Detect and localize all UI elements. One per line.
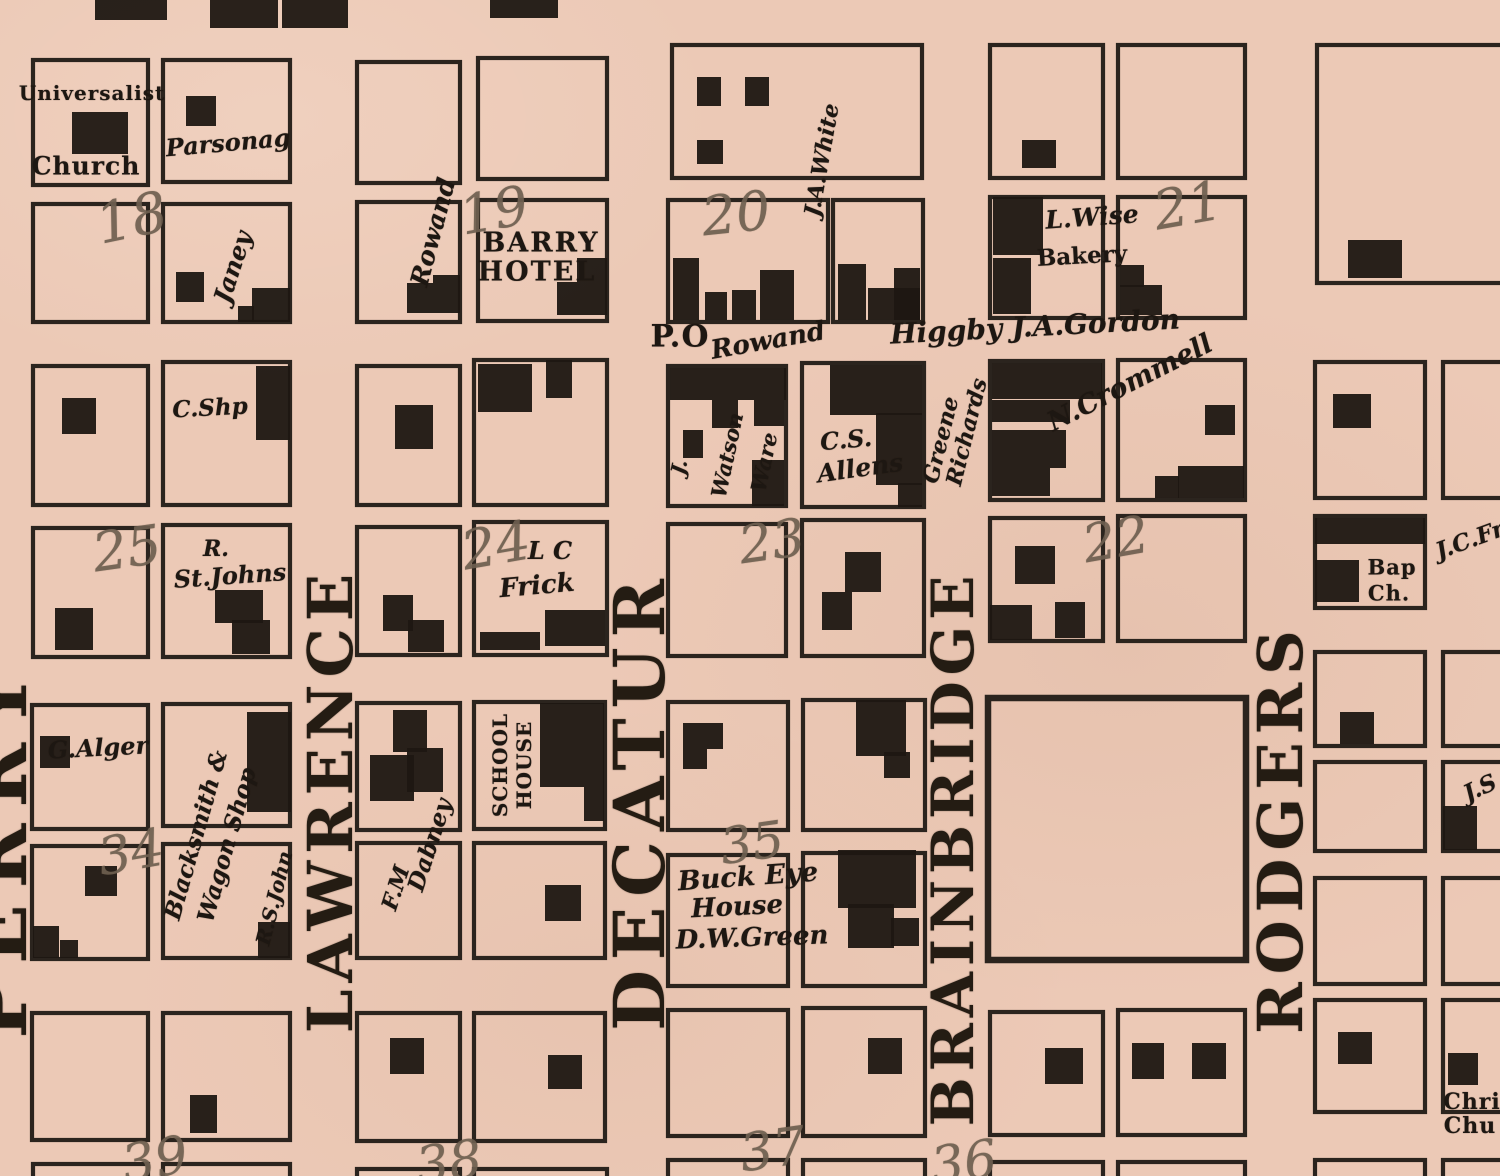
building-footprint [845,552,881,592]
building-footprint [1120,265,1144,287]
lot-outline [1443,878,1500,984]
building-footprint [732,290,756,320]
building-footprint [830,365,922,415]
label-st-johns: St.Johns [173,560,287,592]
street-name-perry: PERRY [0,657,39,1038]
lot-outline [1443,652,1500,746]
building-footprint [478,364,532,412]
block-number-34: 34 [94,822,168,885]
label-l-wise: L.Wise [1045,201,1140,232]
building-footprint [1348,240,1402,278]
lot-outline [1443,362,1500,498]
lot-outline [1315,762,1425,851]
label-post-office: P.O [651,322,710,353]
block-number-25: 25 [89,517,165,580]
building-footprint [60,940,78,958]
building-footprint [190,1095,217,1133]
building-footprint [62,398,96,434]
building-footprint [1448,1053,1478,1085]
block-number-36: 36 [928,1133,1001,1176]
lot-outline [1443,1160,1500,1176]
building-footprint [838,264,866,320]
building-footprint [1055,602,1085,638]
building-footprint [548,1055,582,1089]
street-name-rodgers: RODGERS [1250,622,1312,1034]
building-footprint [256,366,290,440]
building-footprint [545,610,605,646]
building-footprint [252,288,290,322]
building-footprint [838,850,916,908]
lot-outline [357,1013,460,1141]
building-footprint [176,272,204,302]
building-footprint [490,0,558,18]
label-frick: Frick [498,570,575,602]
building-footprint [1205,405,1235,435]
street-name-decatur: DECATUR [605,569,675,1031]
building-footprint [186,96,216,126]
lot-outline [990,1162,1103,1176]
label-chu: Chu [1444,1115,1497,1137]
label-buck-eye-house: House [690,892,783,923]
building-footprint [1315,518,1425,544]
lot-outline [478,58,607,179]
building-footprint [993,258,1031,314]
label-cs: C.S. [819,426,873,454]
building-footprint [697,77,721,106]
building-footprint [1178,466,1244,498]
building-footprint [868,1038,902,1074]
lot-outline [474,1013,605,1141]
building-footprint [1443,806,1477,850]
building-footprint [1155,476,1179,498]
building-footprint [992,468,1050,496]
building-footprint [1022,140,1056,168]
block-number-24: 24 [457,513,534,578]
building-footprint [72,112,128,154]
lot-outline [668,1010,788,1136]
label-bakery: Bakery [1036,242,1127,270]
building-footprint [884,752,910,778]
lot-outline [33,366,148,505]
street-name-lawrence: LAWRENCE [300,567,362,1033]
lot-outline [1118,1162,1245,1176]
lot-outline [163,1013,290,1140]
building-footprint [822,592,852,630]
building-footprint [540,703,604,787]
label-lc: L C [528,539,572,563]
lot-outline [357,843,460,958]
building-footprint [683,723,723,749]
building-footprint [232,620,270,654]
building-footprint [545,885,581,921]
label-g-alger: G.Alger [47,733,149,762]
building-footprint [408,620,444,652]
lot-outline [803,1008,925,1136]
building-footprint [891,918,919,946]
lot-outline [1118,45,1245,178]
building-footprint [705,292,727,320]
building-footprint [697,140,723,164]
building-footprint [390,1038,424,1074]
label-universalist: Universalist [19,83,165,103]
label-ch: Ch. [1368,583,1410,604]
building-footprint [894,268,920,320]
building-footprint [670,368,786,400]
building-footprint [55,608,93,650]
label-r: R. [203,538,229,560]
building-footprint [683,430,703,458]
block-number-22: 22 [1079,509,1153,572]
building-footprint [1132,1043,1164,1079]
block-number-39: 39 [118,1129,192,1176]
street-name-brainbridge: BRAINBRIDGE [924,570,982,1127]
block-number-37: 37 [737,1120,810,1176]
building-footprint [1340,712,1374,744]
lot-outline [474,1169,607,1176]
label-school: SCHOOL [490,713,510,817]
label-barry: BARRY [482,230,599,257]
building-footprint [393,710,427,752]
label-hotel: HOTEL [478,259,597,286]
plat-map: PERRY LAWRENCE DECATUR BRAINBRIDGE RODGE… [0,0,1500,1176]
label-dw-green: D.W.Green [675,922,829,953]
lot-outline [803,1160,925,1176]
lot-outline [32,1013,148,1140]
lot-outline [474,843,605,958]
building-footprint [1338,1032,1372,1064]
building-footprint [95,0,167,20]
building-footprint [215,590,263,623]
label-bap: Bap [1367,557,1416,578]
building-footprint [1045,1048,1083,1084]
lot-outline [1315,878,1425,984]
building-footprint [898,483,922,507]
building-footprint [1192,1043,1226,1079]
lot-outline [1315,362,1425,498]
lot-outline [1317,45,1500,283]
building-footprint [238,306,254,322]
block-number-21: 21 [1149,173,1226,238]
building-footprint [754,400,784,426]
lot-outline [1315,1160,1425,1176]
building-footprint [1015,546,1055,584]
building-footprint [395,405,433,449]
label-house: HOUSE [514,721,534,809]
building-footprint [1333,394,1371,428]
building-footprint [745,77,769,106]
block-number-38: 38 [413,1133,486,1176]
building-footprint [546,360,572,398]
building-footprint [856,700,906,756]
building-footprint [848,904,894,948]
label-church: Church [32,154,141,179]
lot-outline [357,62,460,183]
building-footprint [433,275,460,313]
building-footprint [1315,560,1359,602]
lot-outline-large-block [988,698,1246,960]
lot-outline [163,60,290,182]
building-footprint [480,632,540,650]
building-footprint [210,0,278,28]
block-number-20: 20 [699,184,773,245]
block-number-23: 23 [736,512,809,573]
building-footprint [282,0,348,28]
building-footprint [407,748,443,792]
building-footprint [673,258,699,320]
block-number-18: 18 [91,184,172,254]
label-c-shp: C.Shp [172,395,248,422]
label-chri: Chri [1443,1091,1500,1113]
building-footprint [760,270,794,320]
building-footprint [990,605,1032,640]
building-footprint [683,749,707,769]
